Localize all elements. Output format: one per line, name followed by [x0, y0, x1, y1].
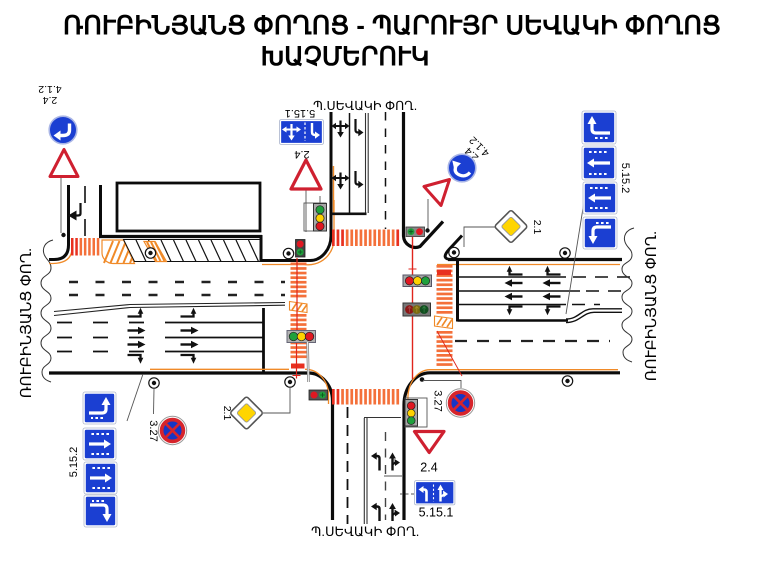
- svg-text:ՌՈՒԲԻՆՅԱՆՑ ՓՈՂ.: ՌՈՒԲԻՆՅԱՆՑ ՓՈՂ.: [643, 231, 660, 381]
- svg-text:2.1: 2.1: [531, 220, 543, 235]
- svg-text:5.15.1: 5.15.1: [419, 506, 454, 520]
- svg-text:Պ.ՍԵՎԱԿԻ ՓՈՂ.: Պ.ՍԵՎԱԿԻ ՓՈՂ.: [313, 99, 417, 113]
- svg-text:3.27: 3.27: [147, 420, 159, 441]
- svg-text:ՌՈՒԲԻՆՅԱՆՑ ՓՈՂ.: ՌՈՒԲԻՆՅԱՆՑ ՓՈՂ.: [18, 248, 35, 398]
- svg-text:ՌՈՒԲԻՆՅԱՆՑ ՓՈՂՈՑ - ՊԱՐՈՒՅՐ ՍԵՎ: ՌՈՒԲԻՆՅԱՆՑ ՓՈՂՈՑ - ՊԱՐՈՒՅՐ ՍԵՎԱԿԻ ՓՈՂՈՑ: [63, 12, 721, 40]
- svg-text:5.15.2: 5.15.2: [619, 163, 631, 194]
- svg-text:5.15.1: 5.15.1: [285, 107, 316, 119]
- svg-text:Պ.ՍԵՎԱԿԻ ՓՈՂ.: Պ.ՍԵՎԱԿԻ ՓՈՂ.: [311, 524, 419, 539]
- svg-text:2.4: 2.4: [420, 461, 437, 475]
- svg-text:3.27: 3.27: [432, 390, 444, 411]
- svg-text:2.1: 2.1: [221, 406, 233, 421]
- svg-text:4.1.2: 4.1.2: [38, 83, 62, 95]
- svg-text:2.4: 2.4: [294, 148, 309, 160]
- svg-text:5.15.2: 5.15.2: [68, 447, 80, 478]
- svg-text:ԽԱՉՄԵՐՈՒԿ: ԽԱՉՄԵՐՈՒԿ: [261, 43, 430, 71]
